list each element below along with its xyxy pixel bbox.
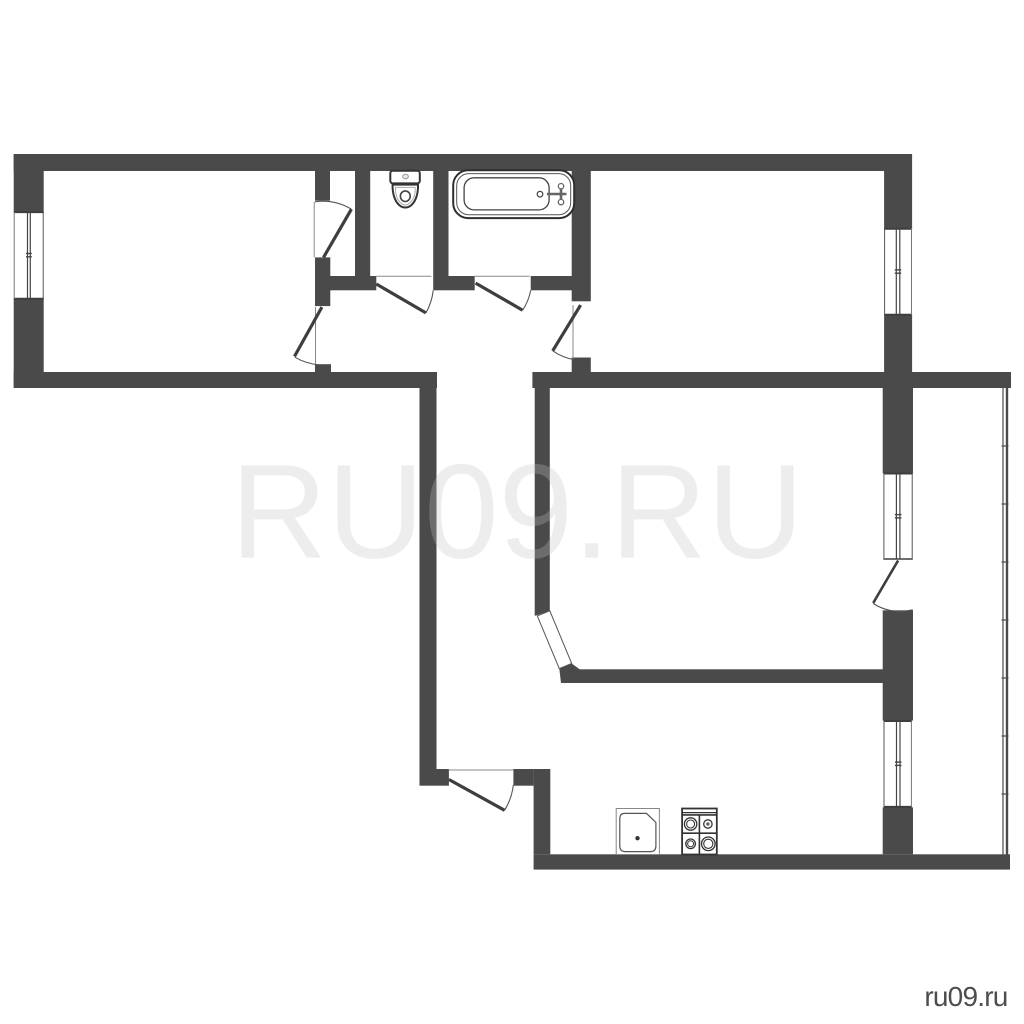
- svg-text:ru09.ru: ru09.ru: [924, 981, 1007, 1012]
- svg-text:RU09.RU: RU09.RU: [231, 438, 804, 587]
